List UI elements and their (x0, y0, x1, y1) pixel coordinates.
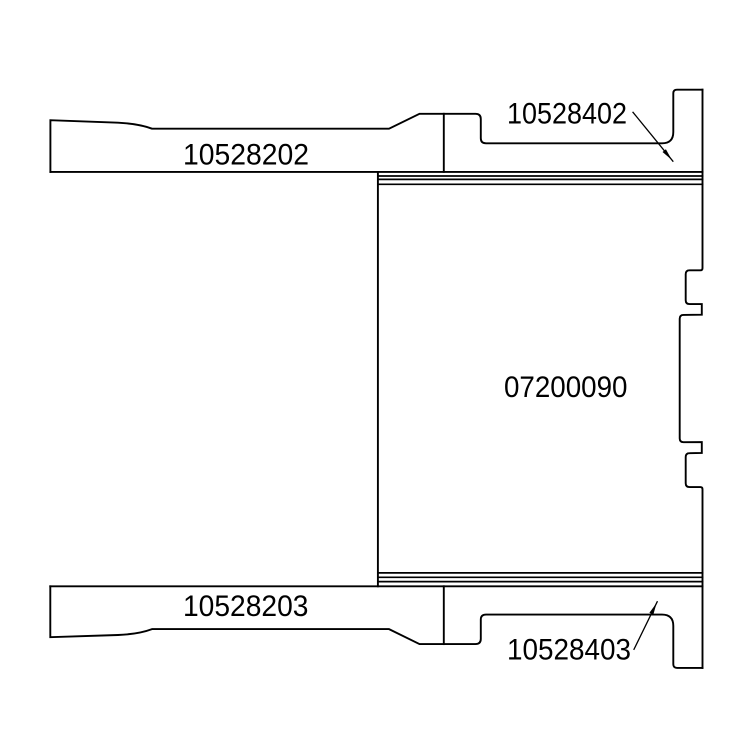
svg-text:10528402: 10528402 (507, 98, 627, 131)
svg-text:10528203: 10528203 (183, 590, 309, 623)
svg-text:10528403: 10528403 (507, 634, 631, 667)
svg-text:07200090: 07200090 (504, 371, 628, 404)
svg-text:10528202: 10528202 (183, 138, 309, 171)
